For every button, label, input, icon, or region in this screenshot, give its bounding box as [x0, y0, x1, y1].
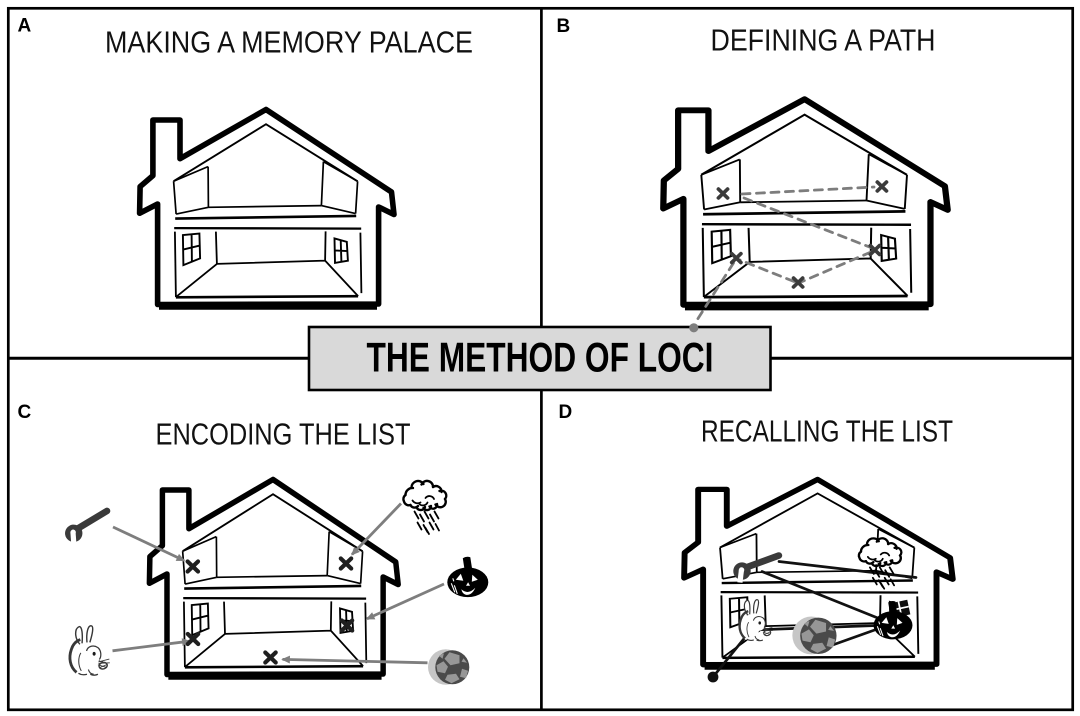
svg-text:B: B	[557, 16, 571, 37]
svg-text:THE METHOD OF LOCI: THE METHOD OF LOCI	[367, 334, 714, 381]
svg-text:ENCODING THE LIST: ENCODING THE LIST	[156, 418, 411, 452]
svg-text:RECALLING THE LIST: RECALLING THE LIST	[701, 415, 953, 449]
svg-text:D: D	[559, 402, 573, 423]
svg-text:DEFINING A PATH: DEFINING A PATH	[711, 24, 936, 58]
svg-text:A: A	[18, 15, 32, 36]
svg-text:C: C	[18, 402, 32, 423]
svg-text:MAKING A MEMORY PALACE: MAKING A MEMORY PALACE	[105, 25, 473, 59]
